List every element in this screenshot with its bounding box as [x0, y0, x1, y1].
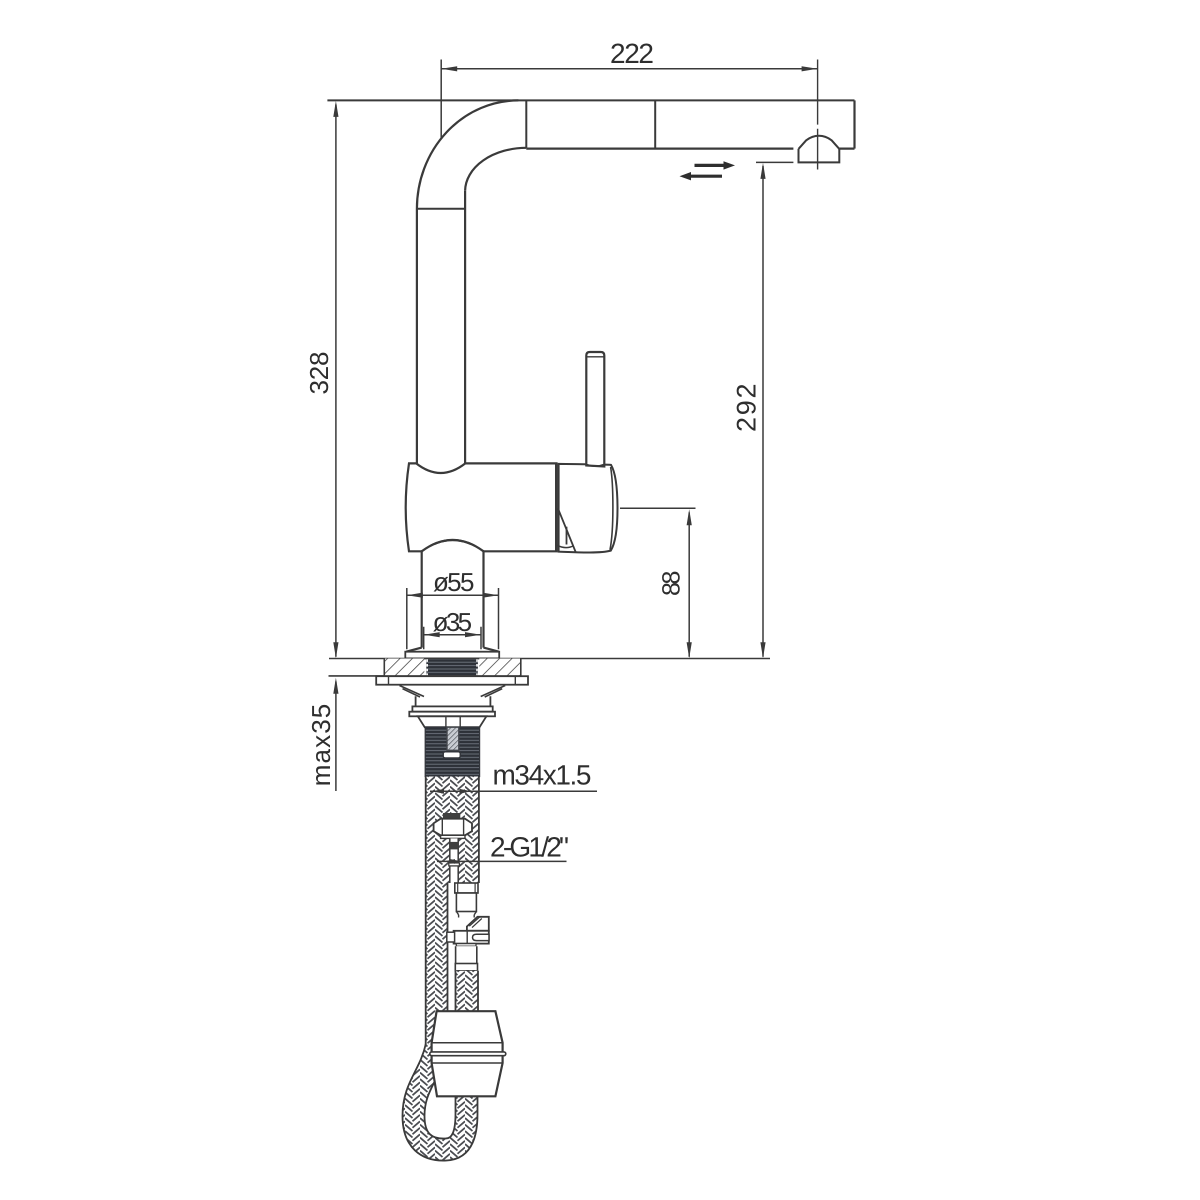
svg-text:88: 88	[658, 571, 686, 597]
svg-text:222: 222	[610, 38, 654, 69]
svg-text:max35: max35	[306, 704, 336, 787]
svg-text:ø55: ø55	[433, 567, 475, 597]
svg-text:328: 328	[304, 352, 334, 395]
svg-text:292: 292	[732, 383, 762, 432]
svg-text:m34x1.5: m34x1.5	[493, 760, 592, 791]
svg-text:2-G1/2": 2-G1/2"	[490, 832, 569, 863]
svg-text:ø35: ø35	[433, 607, 473, 637]
